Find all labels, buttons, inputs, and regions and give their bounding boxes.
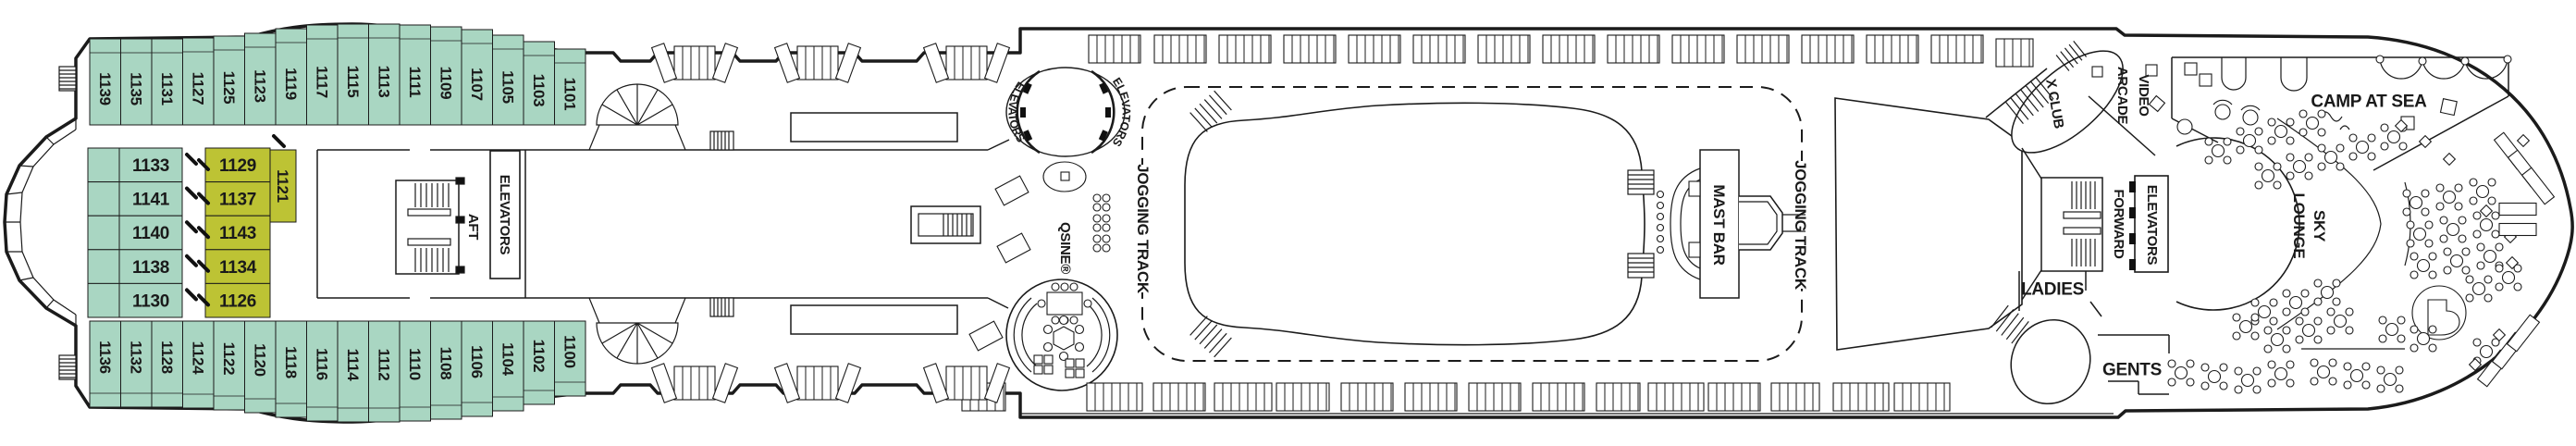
cabin-1123: 1123 (245, 33, 277, 125)
cabin-1122: 1122 (214, 321, 245, 410)
cabin-1116: 1116 (307, 321, 339, 421)
cabin-1110: 1110 (400, 321, 431, 421)
deck-structure (791, 113, 957, 142)
midship-elevator-lobby: ELEVATORS ELEVATORS (1005, 68, 1132, 156)
svg-text:1105: 1105 (499, 70, 516, 104)
svg-text:1129: 1129 (219, 156, 256, 176)
svg-text:1106: 1106 (468, 345, 486, 378)
jogging-track-left-label: JOGGING TRACK (1134, 164, 1152, 294)
svg-text:1104: 1104 (499, 342, 516, 377)
sun-lounger-block (1867, 35, 1918, 63)
video-arcade-label-line2: ARCADE (2114, 67, 2130, 125)
sun-lounger-block (1089, 35, 1140, 63)
deck-plan: 1139113511311127112511231119111711151113… (0, 0, 2576, 446)
svg-text:1117: 1117 (313, 66, 330, 98)
svg-text:1103: 1103 (530, 74, 548, 107)
bench-seat (2499, 204, 2536, 216)
sun-lounger-block (1478, 35, 1530, 63)
qsine-label: QSINE® (1057, 222, 1073, 274)
cabin-1115: 1115 (338, 24, 369, 125)
svg-text:1123: 1123 (251, 69, 268, 103)
cabin-1121: 1121 (270, 150, 296, 222)
svg-text:1127: 1127 (189, 72, 206, 105)
cabin-1104: 1104 (493, 321, 524, 411)
svg-text:1128: 1128 (158, 341, 176, 374)
sun-lounger-block (1672, 35, 1724, 63)
cabin-1136: 1136 (90, 321, 121, 407)
sky-lounge-label-line1: SKY (2311, 210, 2328, 242)
tender-boat-icon (775, 43, 861, 82)
cabin-1118: 1118 (276, 321, 307, 417)
cabin-1109: 1109 (431, 27, 462, 125)
tender-boat-icon (652, 364, 738, 403)
cabin-1126: 1126 (205, 283, 270, 317)
cabin-1112: 1112 (369, 321, 401, 422)
balcony-cell (88, 148, 119, 182)
sun-lounger-block (1833, 383, 1889, 411)
svg-text:1132: 1132 (127, 341, 144, 374)
svg-text:1126: 1126 (219, 291, 256, 311)
svg-text:1116: 1116 (313, 348, 330, 380)
sun-lounger-block (1405, 383, 1457, 411)
forward-elevators-label: ELEVATORS (2144, 185, 2160, 266)
tender-boat-icon (924, 364, 1010, 403)
svg-text:1110: 1110 (406, 348, 424, 380)
svg-text:1121: 1121 (274, 169, 291, 203)
svg-text:1136: 1136 (96, 341, 114, 374)
sun-lounger-block (1214, 383, 1272, 411)
svg-text:1111: 1111 (406, 67, 424, 98)
svg-text:1112: 1112 (375, 349, 392, 381)
cabin-1103: 1103 (524, 42, 555, 125)
svg-text:1102: 1102 (530, 340, 548, 373)
center-stairs-icon (911, 206, 980, 243)
sky-lounge-label-line2: LOUNGE (2290, 193, 2308, 259)
cabin-1134: 1134 (205, 250, 270, 284)
cabin-1113: 1113 (369, 24, 401, 125)
svg-text:1115: 1115 (344, 66, 362, 98)
svg-text:1140: 1140 (132, 224, 169, 243)
sun-lounger-block (1284, 35, 1336, 63)
forward-label: FORWARD (2111, 189, 2126, 259)
cabin-1100: 1100 (555, 321, 586, 396)
svg-text:1130: 1130 (132, 291, 169, 311)
sun-lounger-block (1648, 383, 1704, 411)
bench-seat (2499, 224, 2536, 236)
balcony-cell (88, 250, 119, 284)
jogging-track-right-label: JOGGING TRACK (1792, 160, 1809, 291)
deck-structure (791, 305, 957, 334)
svg-text:1118: 1118 (282, 346, 300, 378)
svg-text:1137: 1137 (219, 191, 256, 210)
tender-boat-icon (652, 43, 738, 82)
sun-lounger-block (1894, 383, 1950, 411)
svg-text:1113: 1113 (375, 66, 392, 98)
cabin-1132: 1132 (121, 321, 153, 407)
cabin-1138: 1138 (119, 250, 182, 284)
cabin-1101: 1101 (555, 49, 586, 125)
balcony-cell (88, 182, 119, 217)
pool-deck-opening (1185, 91, 1664, 357)
cabin-1141: 1141 (119, 182, 182, 217)
aft-stairs-icon (396, 178, 464, 274)
svg-text:1141: 1141 (132, 191, 170, 210)
cabin-1139: 1139 (90, 39, 121, 125)
sun-lounger-block (1469, 383, 1521, 411)
cabin-1120: 1120 (245, 321, 277, 413)
cabin-1124: 1124 (183, 321, 215, 408)
aft-label: AFT (465, 214, 481, 240)
ladies-label: LADIES (2021, 280, 2084, 300)
cabin-1102: 1102 (524, 321, 555, 404)
cabin-1135: 1135 (121, 39, 153, 125)
svg-text:1107: 1107 (468, 68, 486, 101)
cabin-1137: 1137 (205, 182, 270, 217)
sun-lounger-block (1543, 35, 1595, 63)
svg-text:1120: 1120 (251, 343, 268, 377)
sun-lounger-block (1533, 383, 1584, 411)
cabin-1129: 1129 (205, 148, 270, 182)
cabin-1114: 1114 (338, 321, 369, 422)
tender-boat-icon (924, 43, 1010, 82)
sun-lounger-block (1349, 35, 1400, 63)
cabin-1128: 1128 (152, 321, 183, 407)
svg-text:1125: 1125 (220, 71, 238, 105)
svg-text:1143: 1143 (219, 224, 256, 243)
cabin-1131: 1131 (152, 39, 183, 125)
tender-boat-icon (775, 364, 861, 403)
cabin-1107: 1107 (462, 30, 493, 125)
svg-text:1114: 1114 (344, 349, 362, 382)
svg-text:1139: 1139 (96, 72, 114, 105)
sun-lounger-block (1737, 35, 1789, 63)
gents-label: GENTS (2102, 361, 2162, 380)
sun-lounger-block (1596, 383, 1640, 411)
cabin-1140: 1140 (119, 216, 182, 250)
mast-bar-label: MAST BAR (1710, 184, 1728, 265)
cabin-1117: 1117 (307, 25, 339, 125)
cabin-1111: 1111 (400, 25, 431, 125)
cabin-1119: 1119 (276, 29, 307, 125)
svg-text:1133: 1133 (132, 156, 169, 176)
balcony-cell (88, 283, 119, 317)
sun-lounger-block (1996, 39, 2033, 67)
sun-lounger-block (1771, 383, 1819, 411)
sun-lounger-block (1341, 383, 1393, 411)
svg-text:1124: 1124 (189, 341, 206, 376)
sun-lounger-block (1219, 35, 1271, 63)
svg-text:1134: 1134 (219, 258, 257, 278)
sun-lounger-block (1708, 383, 1760, 411)
funnel-casing (1835, 98, 2022, 350)
cabin-1106: 1106 (462, 321, 493, 416)
cabin-1108: 1108 (431, 321, 462, 419)
aft-elevators-label: ELEVATORS (497, 175, 512, 255)
svg-text:1109: 1109 (437, 67, 454, 100)
svg-text:1108: 1108 (437, 347, 454, 380)
video-arcade-label-line1: VIDEO (2136, 74, 2151, 117)
cabin-1143: 1143 (205, 216, 270, 250)
svg-text:1131: 1131 (158, 72, 176, 105)
svg-text:1101: 1101 (561, 78, 578, 111)
sun-lounger-block (1154, 35, 1206, 63)
svg-text:1135: 1135 (127, 72, 144, 105)
cabin-1133: 1133 (119, 148, 182, 182)
cabin-1130: 1130 (119, 283, 182, 317)
sun-lounger-block (1153, 383, 1205, 411)
cabin-1125: 1125 (214, 36, 245, 125)
cabin-1127: 1127 (183, 38, 215, 125)
sun-lounger-block (1802, 35, 1854, 63)
sun-lounger-block (1608, 35, 1659, 63)
forward-elevators: ELEVATORS (2129, 176, 2168, 272)
svg-text:1138: 1138 (132, 258, 169, 278)
svg-text:1122: 1122 (220, 342, 238, 376)
cabin-1105: 1105 (493, 35, 524, 125)
svg-text:1119: 1119 (282, 68, 300, 100)
sun-lounger-block (1413, 35, 1465, 63)
sun-lounger-block (1087, 383, 1142, 411)
svg-text:1100: 1100 (561, 335, 578, 368)
camp-at-sea-label: CAMP AT SEA (2311, 93, 2427, 112)
sun-lounger-block (1276, 383, 1329, 411)
sun-lounger-block (1931, 35, 1983, 63)
balcony-cell (88, 216, 119, 250)
aft-elevators: ELEVATORS (490, 151, 520, 279)
